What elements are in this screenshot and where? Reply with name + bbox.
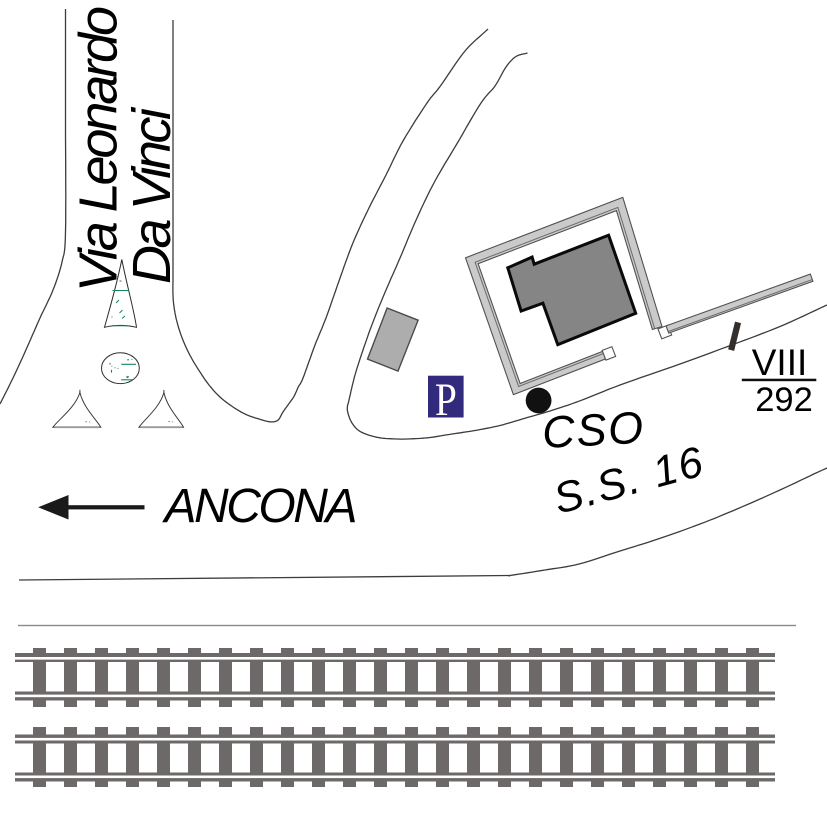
svg-text:CSO: CSO (541, 402, 645, 458)
svg-text:P: P (435, 374, 457, 426)
svg-text:Via Leonardo: Via Leonardo (69, 6, 129, 292)
svg-text:Da Vinci: Da Vinci (122, 106, 182, 284)
svg-text:VIII: VIII (752, 342, 808, 383)
svg-text:292: 292 (755, 381, 813, 419)
svg-text:ANCONA: ANCONA (162, 480, 358, 533)
